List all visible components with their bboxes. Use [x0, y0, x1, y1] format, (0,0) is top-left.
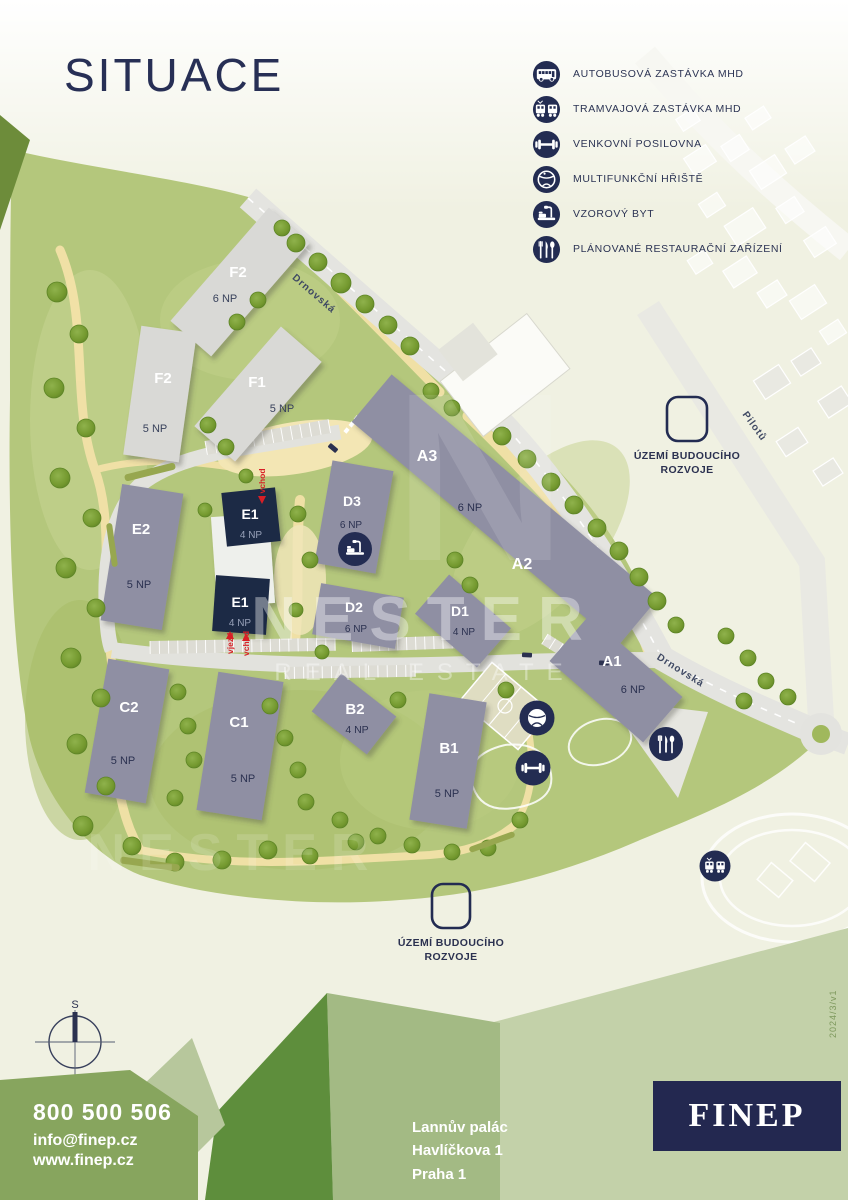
- tree: [180, 718, 196, 734]
- label-e2: E2: [132, 521, 150, 538]
- watermark-initial: N: [393, 343, 566, 611]
- tree: [290, 506, 306, 522]
- label-d1: D1: [451, 603, 469, 619]
- tree: [309, 253, 327, 271]
- label-a2: A2: [512, 556, 533, 573]
- floors-f2-west: 5 NP: [143, 423, 167, 435]
- floors-e1-south: 4 NP: [229, 618, 252, 629]
- tree: [198, 503, 212, 517]
- floors-f2-north: 6 NP: [213, 293, 237, 305]
- tree: [186, 752, 202, 768]
- tree: [229, 314, 245, 330]
- tree: [379, 316, 397, 334]
- tree: [277, 730, 293, 746]
- watermark-name: NESTER: [251, 585, 598, 654]
- label-b1: B1: [439, 740, 458, 757]
- label-a1: A1: [602, 653, 621, 670]
- contact-block: 800 500 506 info@finep.cz www.finep.cz: [33, 1098, 172, 1171]
- bus-icon: [532, 60, 561, 89]
- tree: [287, 234, 305, 252]
- tree: [97, 777, 115, 795]
- tree: [565, 496, 583, 514]
- label-d3: D3: [343, 493, 361, 509]
- tree: [356, 295, 374, 313]
- legend-item-court: MULTIFUNKČNÍ HŘIŠTĚ: [532, 165, 832, 193]
- tree: [262, 698, 278, 714]
- future-area-text-4: ROZVOJE: [425, 951, 478, 963]
- label-b2: B2: [345, 701, 364, 718]
- tree: [92, 689, 110, 707]
- tree: [56, 558, 76, 578]
- show-apartment-icon: [338, 532, 372, 566]
- tree: [70, 325, 88, 343]
- page-title: SITUACE: [64, 48, 284, 102]
- tree: [167, 790, 183, 806]
- entrance-vchod-north: vchod: [257, 468, 267, 493]
- email-link[interactable]: info@finep.cz: [33, 1131, 172, 1151]
- legend-item-apartment: VZOROVÝ BYT: [532, 200, 832, 228]
- tree: [218, 439, 234, 455]
- tree: [250, 292, 266, 308]
- legend-item-bus: AUTOBUSOVÁ ZASTÁVKA MHD: [532, 60, 832, 88]
- tree: [50, 468, 70, 488]
- outdoor-gym-icon: [532, 130, 561, 159]
- floors-d3: 6 NP: [340, 520, 363, 531]
- tree: [302, 552, 318, 568]
- tram-stop-icon: [700, 851, 731, 882]
- legend-label: PLÁNOVANÉ RESTAURAČNÍ ZAŘÍZENÍ: [573, 243, 783, 255]
- tree: [61, 648, 81, 668]
- tree: [83, 509, 101, 527]
- legend-label: MULTIFUNKČNÍ HŘIŠTĚ: [573, 173, 703, 185]
- floors-b2: 4 NP: [345, 724, 368, 736]
- multifunction-court-icon: [532, 165, 561, 194]
- legend-label: VZOROVÝ BYT: [573, 208, 654, 220]
- tram-icon: [532, 95, 561, 124]
- multifunction-court-icon: [520, 701, 555, 736]
- legend: AUTOBUSOVÁ ZASTÁVKA MHD TRAMVAJOVÁ ZASTÁ…: [532, 60, 832, 270]
- tree: [610, 542, 628, 560]
- future-area-text-1: ÚZEMÍ BUDOUCÍHO: [634, 449, 740, 462]
- tree: [87, 599, 105, 617]
- floors-e2: 5 NP: [127, 579, 151, 591]
- compass-north-label: S: [71, 999, 78, 1011]
- legend-label: VENKOVNÍ POSILOVNA: [573, 138, 702, 150]
- label-c2: C2: [119, 699, 138, 716]
- tree: [290, 762, 306, 778]
- tree: [780, 689, 796, 705]
- tree: [740, 650, 756, 666]
- restaurant-icon: [649, 727, 683, 761]
- website-link[interactable]: www.finep.cz: [33, 1151, 172, 1171]
- show-apartment-icon: [532, 200, 561, 229]
- label-d2: D2: [345, 599, 363, 615]
- tree: [390, 692, 406, 708]
- legend-label: AUTOBUSOVÁ ZASTÁVKA MHD: [573, 68, 744, 80]
- legend-label: TRAMVAJOVÁ ZASTÁVKA MHD: [573, 103, 741, 115]
- tree: [67, 734, 87, 754]
- floors-a1: 6 NP: [621, 684, 645, 696]
- tree: [274, 220, 290, 236]
- legend-item-gym: VENKOVNÍ POSILOVNA: [532, 130, 832, 158]
- tree: [331, 273, 351, 293]
- tree: [648, 592, 666, 610]
- watermark-tagline: REAL ESTATE: [274, 659, 575, 686]
- legend-item-restaurant: PLÁNOVANÉ RESTAURAČNÍ ZAŘÍZENÍ: [532, 235, 832, 263]
- site-plan-page: N NESTER REAL ESTATE NESTER F2 6 NP F2 5…: [0, 0, 848, 1200]
- future-area-text-2: ROZVOJE: [661, 464, 714, 476]
- tree: [47, 282, 67, 302]
- tree: [44, 378, 64, 398]
- tree: [718, 628, 734, 644]
- future-area-text-3: ÚZEMÍ BUDOUCÍHO: [398, 936, 504, 949]
- tree: [239, 469, 253, 483]
- floors-f1: 5 NP: [270, 403, 294, 415]
- tree: [758, 673, 774, 689]
- legend-item-tram: TRAMVAJOVÁ ZASTÁVKA MHD: [532, 95, 832, 123]
- tree: [170, 684, 186, 700]
- label-e1-north: E1: [241, 506, 258, 522]
- label-f2-north: F2: [229, 264, 247, 281]
- restaurant-icon: [532, 235, 561, 264]
- tree: [630, 568, 648, 586]
- watermark-name-2: NESTER: [88, 824, 383, 882]
- floors-a3: 6 NP: [458, 502, 482, 514]
- floors-c1: 5 NP: [231, 773, 255, 785]
- label-c1: C1: [229, 714, 248, 731]
- label-f1: F1: [248, 374, 266, 391]
- tree: [588, 519, 606, 537]
- tree: [668, 617, 684, 633]
- tree: [444, 844, 460, 860]
- tree: [512, 812, 528, 828]
- floors-b1: 5 NP: [435, 788, 459, 800]
- phone-number: 800 500 506: [33, 1098, 172, 1127]
- tree: [298, 794, 314, 810]
- label-a3: A3: [417, 448, 438, 465]
- tree: [404, 837, 420, 853]
- floors-c2: 5 NP: [111, 755, 135, 767]
- outdoor-gym-icon: [516, 751, 551, 786]
- tree: [200, 417, 216, 433]
- tree: [77, 419, 95, 437]
- floors-d1: 4 NP: [453, 627, 476, 638]
- floors-e1-north: 4 NP: [240, 530, 263, 541]
- label-f2-west: F2: [154, 370, 172, 387]
- floors-d2: 6 NP: [345, 624, 368, 635]
- label-e1-south: E1: [231, 594, 248, 610]
- tree: [736, 693, 752, 709]
